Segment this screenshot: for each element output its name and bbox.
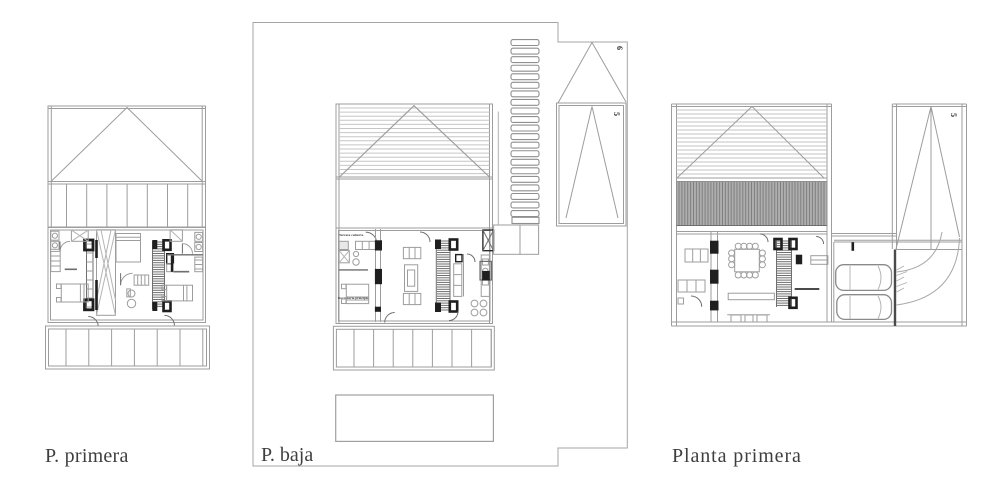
svg-text:Terraza cubierta: Terraza cubierta (339, 233, 364, 237)
svg-text:Planta primera: Planta primera (672, 445, 802, 467)
svg-text:5: 5 (949, 113, 958, 117)
svg-text:5: 5 (612, 112, 621, 116)
svg-text:P. primera: P. primera (45, 445, 129, 467)
svg-text:6: 6 (615, 46, 624, 50)
svg-text:P. baja: P. baja (261, 444, 313, 466)
